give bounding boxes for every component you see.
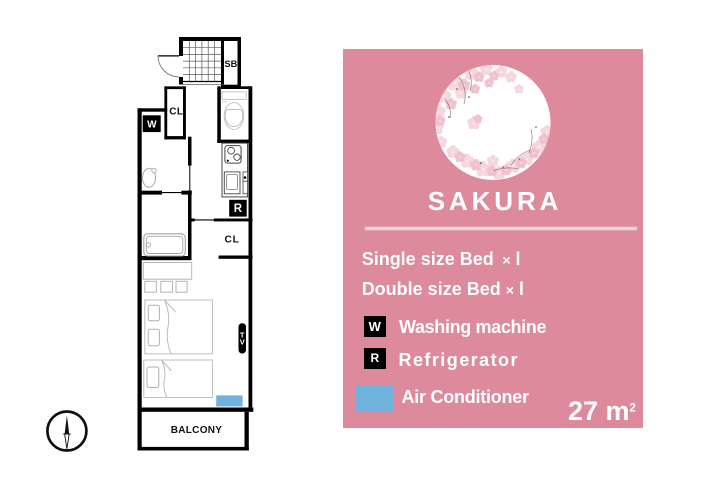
svg-text:W: W <box>147 119 157 130</box>
svg-text:R: R <box>234 203 243 215</box>
svg-text:SB: SB <box>225 59 238 69</box>
svg-text:CL: CL <box>169 107 183 118</box>
svg-text:CL: CL <box>225 235 240 246</box>
svg-text:BALCONY: BALCONY <box>171 425 223 436</box>
svg-text:V: V <box>240 338 245 347</box>
